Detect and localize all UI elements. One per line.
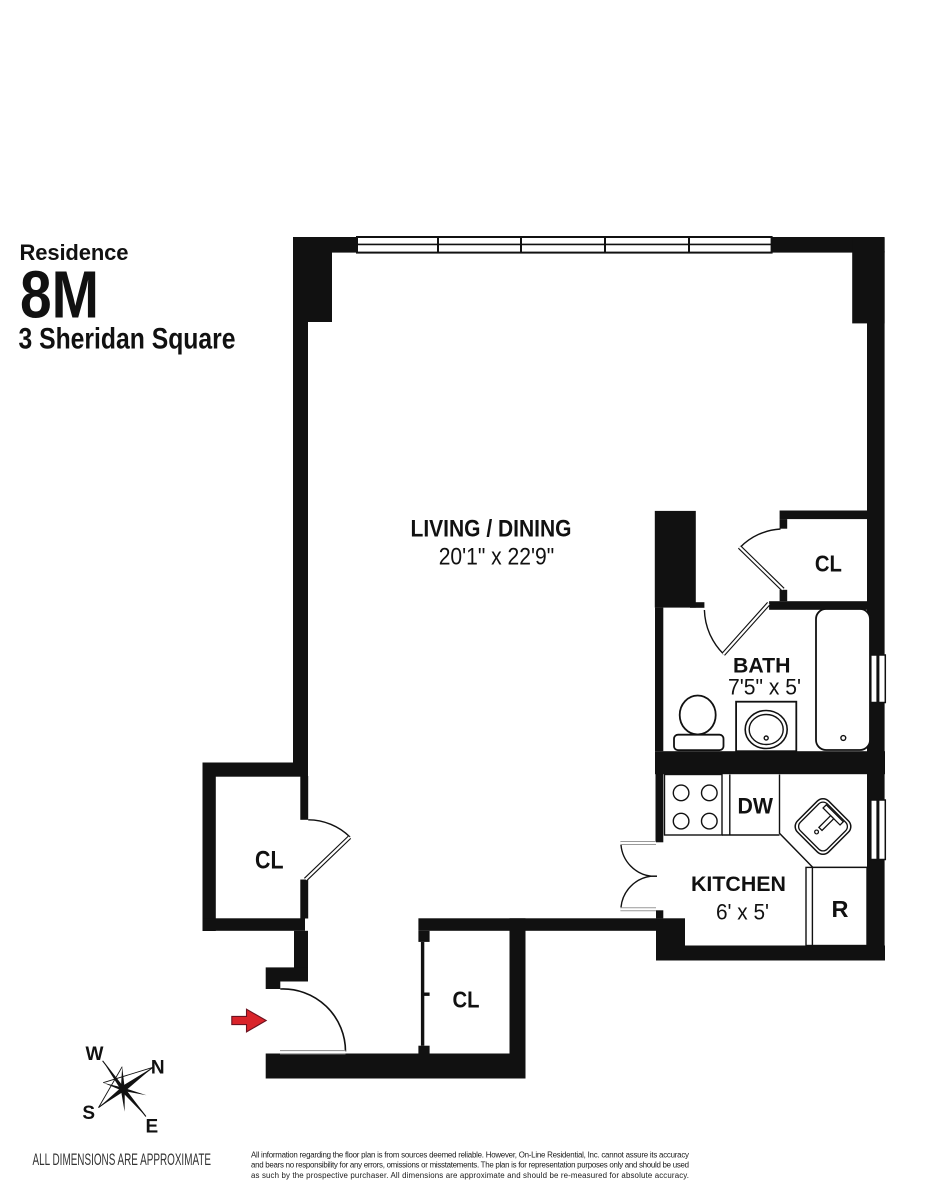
svg-text:W: W	[86, 1044, 104, 1065]
svg-text:and bears no responsibility fo: and bears no responsibility for any erro…	[251, 1161, 689, 1170]
svg-text:7'5" x 5': 7'5" x 5'	[728, 675, 801, 700]
svg-text:S: S	[82, 1103, 95, 1124]
svg-text:as such by the prospective pur: as such by the prospective purchaser. Al…	[251, 1171, 689, 1180]
svg-text:E: E	[145, 1117, 158, 1138]
svg-text:All information regarding the: All information regarding the floor plan…	[251, 1151, 689, 1160]
svg-text:8M: 8M	[20, 258, 99, 333]
svg-text:20'1" x 22'9": 20'1" x 22'9"	[439, 544, 555, 571]
svg-text:CL: CL	[815, 551, 842, 577]
svg-text:CL: CL	[453, 987, 480, 1013]
svg-text:LIVING / DINING: LIVING / DINING	[411, 516, 572, 543]
svg-text:KITCHEN: KITCHEN	[691, 873, 786, 896]
svg-text:3 Sheridan Square: 3 Sheridan Square	[19, 323, 236, 356]
svg-text:CL: CL	[255, 846, 284, 874]
svg-text:6' x 5': 6' x 5'	[716, 900, 769, 925]
svg-text:R: R	[832, 896, 849, 922]
svg-text:N: N	[151, 1057, 165, 1078]
svg-text:DW: DW	[738, 794, 774, 819]
svg-text:ALL DIMENSIONS ARE APPROXIMATE: ALL DIMENSIONS ARE APPROXIMATE	[33, 1150, 212, 1169]
